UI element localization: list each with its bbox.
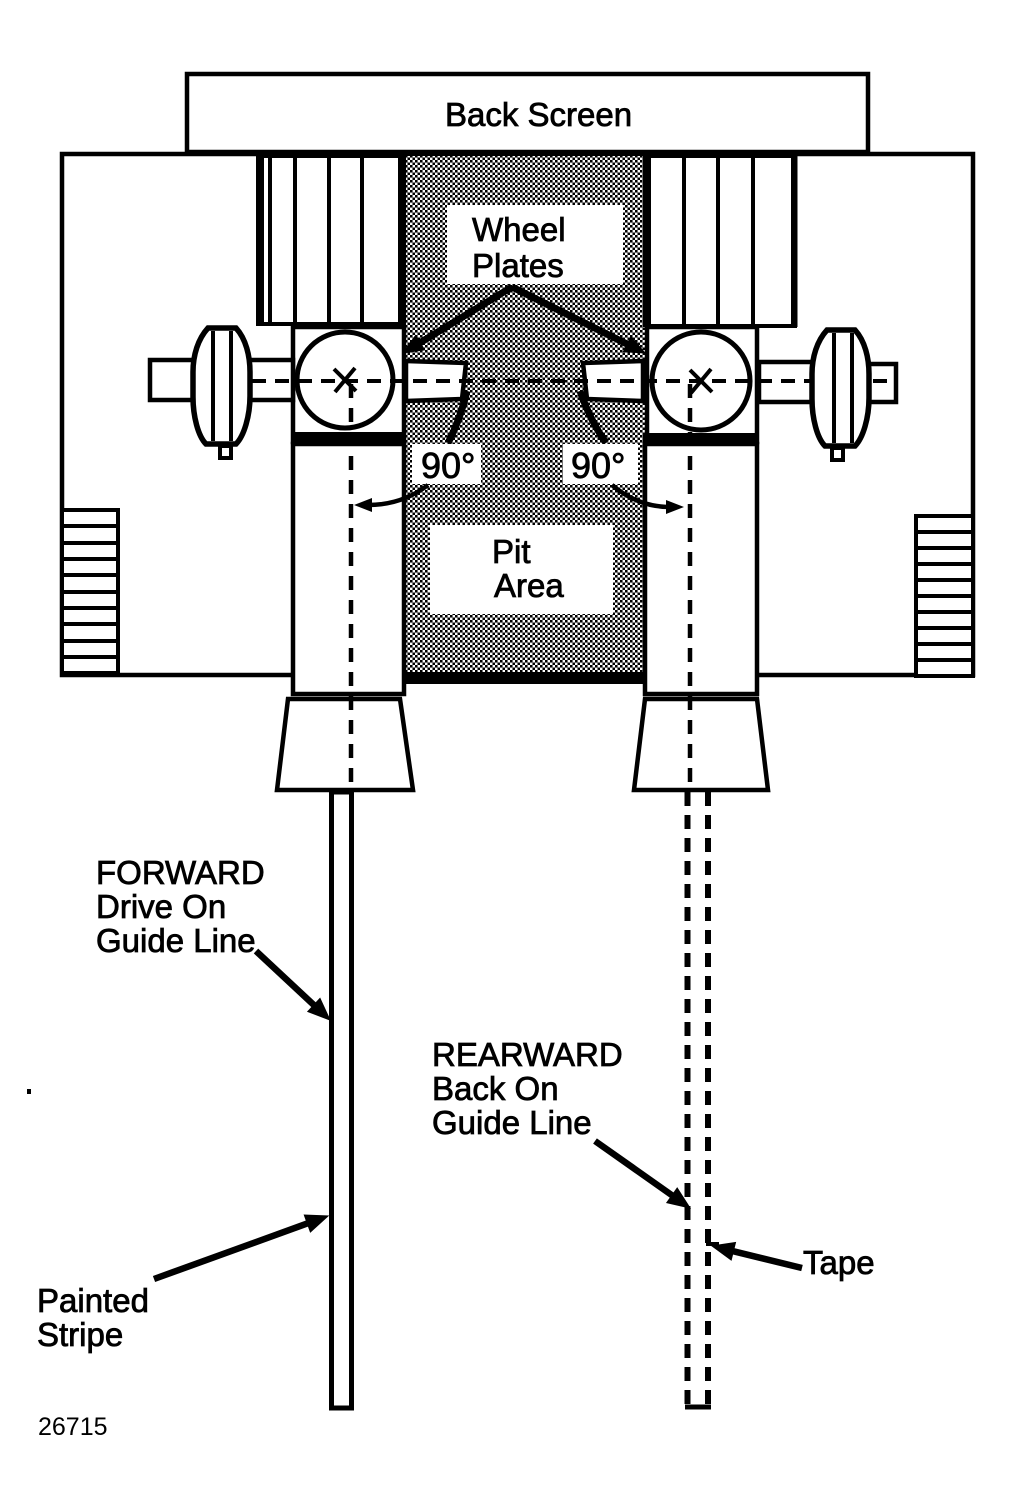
svg-text:90°: 90°: [421, 445, 475, 486]
svg-text:Tape: Tape: [803, 1244, 875, 1281]
svg-text:Guide Line: Guide Line: [432, 1104, 592, 1141]
svg-text:REARWARD: REARWARD: [432, 1036, 623, 1073]
svg-text:26715: 26715: [38, 1413, 108, 1441]
svg-text:Plates: Plates: [472, 247, 564, 284]
svg-text:Back Screen: Back Screen: [445, 96, 632, 133]
svg-text:FORWARD: FORWARD: [96, 854, 265, 891]
svg-text:Painted: Painted: [37, 1282, 149, 1319]
svg-text:Guide Line: Guide Line: [96, 922, 256, 959]
svg-text:Wheel: Wheel: [472, 211, 566, 248]
svg-text:Stripe: Stripe: [37, 1316, 123, 1353]
svg-text:Back On: Back On: [432, 1070, 559, 1107]
svg-text:90°: 90°: [571, 445, 625, 486]
svg-text:Pit: Pit: [492, 533, 531, 570]
svg-text:Area: Area: [494, 567, 564, 604]
svg-text:Drive On: Drive On: [96, 888, 226, 925]
